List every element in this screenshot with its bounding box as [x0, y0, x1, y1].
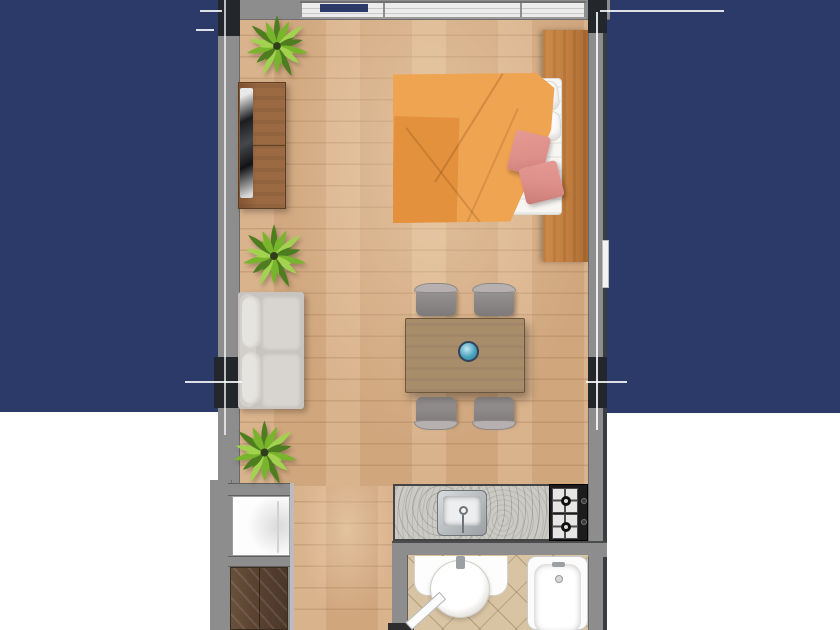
washing-machine [232, 496, 290, 556]
window-open-pane [320, 4, 368, 12]
sofa-back-cushion [242, 352, 262, 404]
window-mullion [520, 3, 522, 17]
bathtub-faucet [552, 562, 565, 567]
dining-chair [414, 286, 458, 318]
bathroom-left-wall [392, 555, 408, 630]
stove-knob [581, 498, 587, 504]
left-wall-lower [210, 480, 232, 630]
chair-back [414, 283, 458, 293]
decor-bowl [458, 341, 479, 362]
bathtub [527, 556, 588, 630]
window-mullion [383, 3, 385, 17]
potted-plant-icon [227, 415, 302, 490]
chair-back [472, 283, 516, 293]
dimension-line [224, 0, 226, 435]
kitchen-sink [437, 490, 487, 536]
window-top-wall [300, 1, 586, 19]
stove-burner [561, 496, 571, 506]
television [240, 88, 253, 198]
wall-column-top-left [218, 0, 240, 36]
background-navy-left [0, 0, 218, 412]
bathtub-drain [555, 575, 563, 583]
wardrobe [230, 567, 288, 630]
stove-grate [552, 488, 578, 513]
sofa-seat-cushion [261, 353, 301, 408]
sink-faucet [462, 515, 464, 533]
right-wall-outer-edge [603, 0, 607, 630]
floor-plan [0, 0, 840, 630]
dimension-line [185, 381, 242, 383]
stove-knob [581, 519, 587, 525]
bathtub-inner [534, 564, 581, 630]
wall-column-top-right [588, 0, 607, 33]
window-rail [300, 13, 586, 14]
potted-plant-icon [237, 219, 311, 293]
basin-faucet [456, 556, 465, 569]
window-mullion [584, 3, 586, 17]
gas-stove [549, 484, 588, 541]
window-right-wall [602, 240, 609, 288]
washer-door-line [277, 501, 279, 553]
dimension-line [586, 381, 627, 383]
dining-chair [472, 395, 516, 427]
duvet-fold-panel [392, 116, 460, 224]
dining-chair [414, 395, 458, 427]
dimension-line [596, 12, 598, 430]
wall-column-mid-right [588, 357, 607, 408]
sofa-back-cushion [242, 296, 262, 348]
potted-plant-icon [241, 10, 313, 82]
wardrobe-door-divider [259, 568, 260, 629]
sofa-seat-cushion [261, 296, 301, 351]
dimension-line [200, 10, 222, 12]
nook-edge-trim [290, 483, 294, 630]
background-navy-right [607, 0, 840, 413]
console-shelf-line [253, 145, 285, 146]
hallway-wood-floor [292, 486, 393, 630]
sink-faucet-head [459, 506, 468, 515]
stove-burner [561, 522, 571, 532]
dimension-line [600, 10, 724, 12]
stove-grate [552, 514, 578, 539]
sofa [238, 292, 304, 409]
wall-column-mid-left [214, 357, 240, 408]
dining-chair [472, 286, 516, 318]
dimension-line [196, 29, 214, 31]
nook-wall-stub [228, 556, 290, 567]
